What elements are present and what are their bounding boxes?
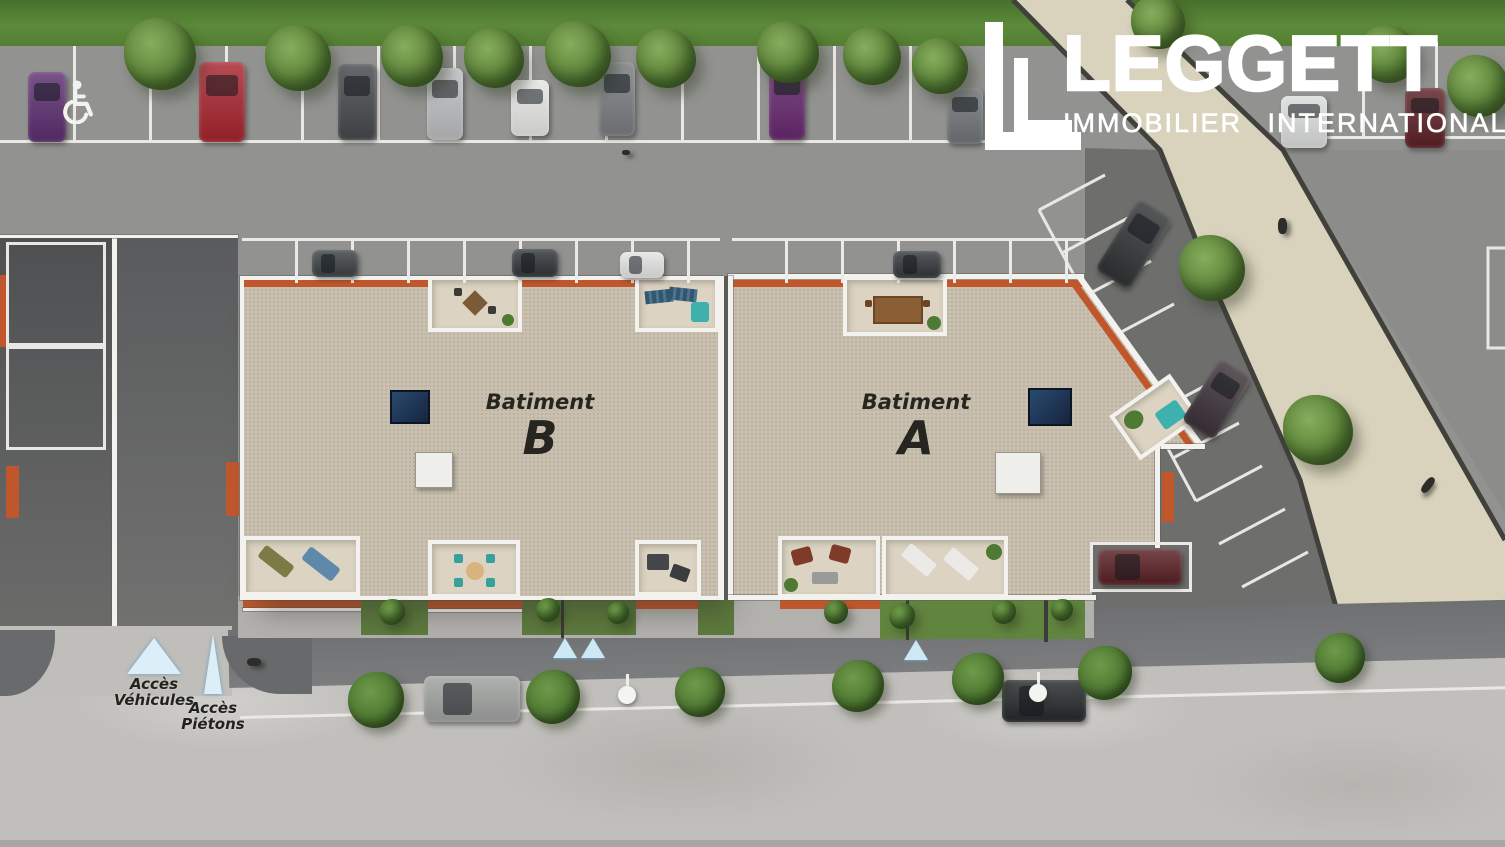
pedestrian-access-label: Accès Piétons bbox=[163, 700, 263, 732]
car-windshield bbox=[206, 75, 238, 96]
shrub bbox=[952, 653, 1004, 705]
car-windshield bbox=[903, 255, 917, 274]
garden-shrub bbox=[889, 603, 915, 629]
car bbox=[424, 676, 520, 722]
tree bbox=[1283, 395, 1353, 465]
car-windshield bbox=[443, 683, 472, 715]
vehicle-access-triangle-icon bbox=[127, 638, 181, 674]
car bbox=[1181, 358, 1252, 441]
car-windshield bbox=[1126, 212, 1161, 245]
leggett-logo-name: LEGGETT bbox=[1063, 18, 1498, 109]
pedestrian-access-label-line2: Piétons bbox=[163, 716, 263, 732]
pedestrian-figure bbox=[1278, 218, 1287, 234]
car-windshield bbox=[321, 254, 335, 273]
garden-shrub bbox=[379, 599, 405, 625]
shrub bbox=[832, 660, 884, 712]
car-windshield bbox=[432, 80, 457, 99]
car-windshield bbox=[952, 97, 977, 112]
car bbox=[511, 80, 549, 136]
entrance-marker-triangle-icon bbox=[904, 640, 928, 660]
tree bbox=[464, 28, 524, 88]
tree bbox=[265, 25, 331, 91]
car-windshield bbox=[629, 256, 642, 274]
handicap-icon bbox=[56, 78, 102, 124]
car bbox=[620, 252, 664, 278]
tree bbox=[843, 27, 901, 85]
streetlight bbox=[618, 686, 636, 704]
tree bbox=[757, 21, 819, 83]
car bbox=[893, 251, 941, 278]
streetlight bbox=[1029, 684, 1047, 702]
car bbox=[512, 249, 558, 277]
pedestrian-access-label-line1: Accès bbox=[163, 700, 263, 716]
car bbox=[199, 62, 245, 142]
garden-shrub bbox=[992, 600, 1016, 624]
car bbox=[312, 250, 358, 277]
garden-shrub bbox=[536, 598, 560, 622]
cyclist-figure bbox=[1419, 475, 1436, 494]
vehicle-access-label-line1: Accès bbox=[94, 676, 214, 692]
tree bbox=[545, 21, 611, 87]
car-windshield bbox=[521, 253, 535, 273]
garden-shrub bbox=[1051, 599, 1073, 621]
car-windshield bbox=[517, 89, 544, 104]
garden-shrub bbox=[607, 602, 629, 624]
leggett-logo-tagline: IMMOBILIER INTERNATIONAL bbox=[1063, 108, 1473, 139]
car-windshield bbox=[1209, 371, 1242, 401]
car bbox=[1095, 198, 1173, 290]
leggett-logo: LEGGETT IMMOBILIER INTERNATIONAL bbox=[975, 8, 1500, 146]
entrance-marker-triangle-icon bbox=[581, 638, 605, 658]
car-windshield bbox=[1115, 554, 1140, 579]
garden-shrub bbox=[824, 600, 848, 624]
shrub bbox=[348, 672, 404, 728]
tree bbox=[636, 28, 696, 88]
tree bbox=[912, 38, 968, 94]
car-windshield bbox=[344, 76, 371, 96]
shrub bbox=[1078, 646, 1132, 700]
tree bbox=[124, 18, 196, 90]
bird-figure bbox=[622, 150, 630, 155]
shrub bbox=[1315, 633, 1365, 683]
tree bbox=[1179, 235, 1245, 301]
dog-figure bbox=[247, 658, 261, 666]
shrub bbox=[526, 670, 580, 724]
car bbox=[1098, 549, 1182, 585]
car-windshield bbox=[604, 74, 629, 93]
site-plan-render: Batiment B Batiment A Accès Véhicules Ac… bbox=[0, 0, 1505, 847]
shrub bbox=[675, 667, 725, 717]
tree bbox=[381, 25, 443, 87]
entrance-marker-triangle-icon bbox=[553, 638, 577, 658]
car bbox=[338, 64, 376, 140]
